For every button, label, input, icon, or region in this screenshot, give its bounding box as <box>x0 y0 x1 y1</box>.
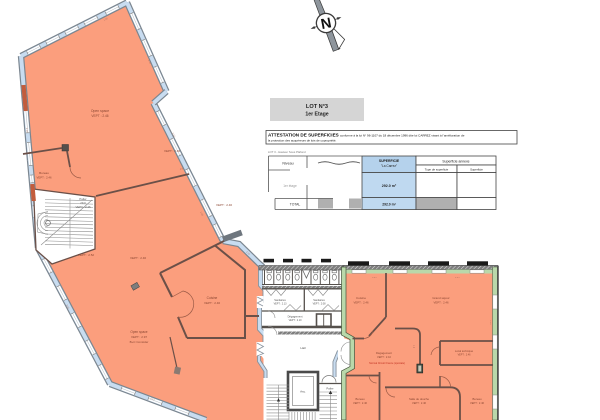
svg-text:Open space: Open space <box>91 109 109 113</box>
svg-text:292.0 m²: 292.0 m² <box>382 202 396 206</box>
svg-text:VEPT : 2.46: VEPT : 2.46 <box>91 114 108 118</box>
svg-text:VEPT : 2.46: VEPT : 2.46 <box>458 354 472 357</box>
svg-text:Salle de douche: Salle de douche <box>409 397 430 401</box>
svg-text:VEPT : 2.10: VEPT : 2.10 <box>377 355 391 359</box>
svg-text:Grand séjour: Grand séjour <box>432 296 449 300</box>
svg-text:VEPT : 2.10: VEPT : 2.10 <box>289 319 303 322</box>
svg-text:SUPERFICIE: SUPERFICIE <box>379 159 400 163</box>
svg-text:VEPT : 2.46: VEPT : 2.46 <box>412 401 426 405</box>
svg-text:VEPT : 2.46: VEPT : 2.46 <box>204 301 220 305</box>
svg-text:Hall: Hall <box>300 346 306 350</box>
svg-text:Normal Circuit France (spécial: Normal Circuit France (spéciale) <box>369 362 405 365</box>
svg-text:3.10: 3.10 <box>489 320 491 325</box>
svg-text:1er étage: 1er étage <box>283 184 297 188</box>
svg-text:Open space: Open space <box>130 330 147 334</box>
svg-text:VEPT : 2.13: VEPT : 2.13 <box>274 303 288 306</box>
svg-text:VEPT : 2.46: VEPT : 2.46 <box>75 205 90 209</box>
svg-text:LOT N°3: LOT N°3 <box>306 104 328 110</box>
svg-text:Bureau: Bureau <box>355 397 364 401</box>
svg-text:Bureau: Bureau <box>472 397 481 401</box>
svg-text:VEPT : 2.97: VEPT : 2.97 <box>131 335 147 339</box>
svg-text:Local technique: Local technique <box>455 349 474 353</box>
svg-text:VEPT : 2.08: VEPT : 2.08 <box>313 303 327 306</box>
svg-text:VEPT : 2.46: VEPT : 2.46 <box>433 301 448 305</box>
svg-text:VEPT : 2.46: VEPT : 2.46 <box>164 149 180 153</box>
svg-text:la protection des acquéreurs d: la protection des acquéreurs de lots de … <box>268 138 337 142</box>
svg-text:4.05: 4.05 <box>455 277 460 279</box>
svg-text:Niveau: Niveau <box>282 162 293 166</box>
svg-text:"La Carrez": "La Carrez" <box>381 164 397 168</box>
svg-text:Cuisine: Cuisine <box>356 296 366 300</box>
svg-text:VEPT : 2.46: VEPT : 2.46 <box>353 301 368 305</box>
svg-text:Superficie: Superficie <box>470 167 483 171</box>
svg-text:Palier: Palier <box>326 387 333 391</box>
svg-text:TOTAL: TOTAL <box>290 202 301 206</box>
svg-text:Cuisine: Cuisine <box>207 296 218 300</box>
svg-text:VEPT : 2.46: VEPT : 2.46 <box>353 401 367 405</box>
svg-text:VEPT : 2.46: VEPT : 2.46 <box>130 256 146 260</box>
svg-text:Bureau: Bureau <box>39 171 49 175</box>
svg-text:Asc.: Asc. <box>300 390 306 394</box>
svg-text:LOT 3 - Hauteur Sous Plafond: LOT 3 - Hauteur Sous Plafond <box>268 150 306 154</box>
svg-text:Type de superficie: Type de superficie <box>425 167 449 171</box>
svg-text:VEPT : 2.46: VEPT : 2.46 <box>216 203 232 207</box>
svg-text:Sanitaires: Sanitaires <box>313 298 325 302</box>
svg-text:B+C Consider: B+C Consider <box>130 340 149 344</box>
svg-text:Sanitaires: Sanitaires <box>274 298 286 302</box>
svg-text:ATTESTATION DE SUPERFICIES con: ATTESTATION DE SUPERFICIES conforme à la… <box>268 133 465 138</box>
svg-text:Dégagement: Dégagement <box>288 315 303 319</box>
svg-text:VEPT : 2.46: VEPT : 2.46 <box>470 401 484 405</box>
svg-text:1er Etage: 1er Etage <box>305 112 328 118</box>
svg-text:3.95: 3.95 <box>372 277 377 279</box>
svg-text:Superficie annexe: Superficie annexe <box>442 159 469 163</box>
svg-text:Dégagement: Dégagement <box>376 351 392 355</box>
svg-text:VEPT : 2.52: VEPT : 2.52 <box>78 253 94 257</box>
svg-text:VEPT : 2.46: VEPT : 2.46 <box>36 176 51 180</box>
svg-text:292.0 m²: 292.0 m² <box>382 184 397 188</box>
